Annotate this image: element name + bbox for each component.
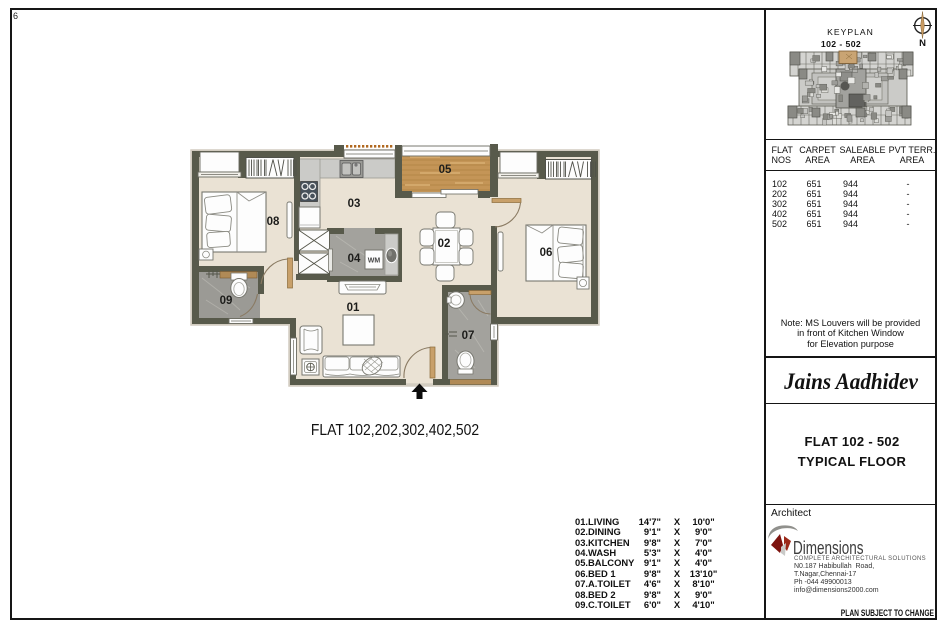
- svg-text:03: 03: [348, 198, 361, 210]
- svg-text:WM: WM: [368, 258, 381, 265]
- svg-text:07: 07: [462, 330, 475, 342]
- svg-text:01: 01: [347, 302, 360, 314]
- svg-text:02: 02: [438, 238, 451, 250]
- svg-text:08: 08: [267, 216, 280, 228]
- svg-text:04: 04: [348, 253, 361, 265]
- svg-text:05: 05: [439, 164, 452, 176]
- svg-text:N: N: [919, 38, 926, 49]
- svg-text:09: 09: [220, 295, 233, 307]
- svg-text:06: 06: [540, 247, 553, 259]
